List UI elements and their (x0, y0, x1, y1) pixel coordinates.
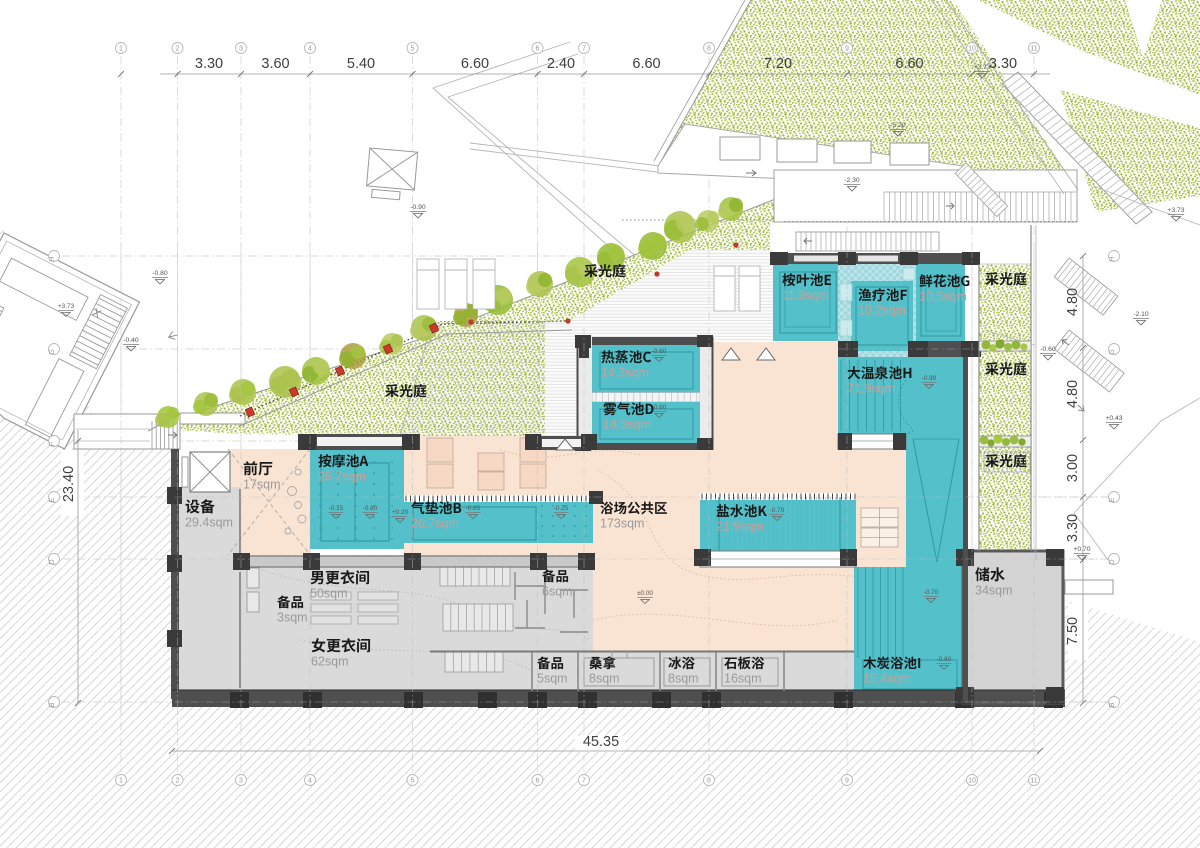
svg-text:6: 6 (536, 46, 540, 53)
svg-text:B: B (1107, 702, 1116, 707)
svg-text:-0.60: -0.60 (652, 348, 667, 355)
svg-text:9: 9 (845, 46, 849, 53)
svg-text:3sqm: 3sqm (277, 611, 308, 625)
svg-text:2: 2 (176, 778, 180, 785)
svg-text:11: 11 (1030, 46, 1037, 53)
svg-text:5sqm: 5sqm (537, 672, 568, 686)
svg-text:3.30: 3.30 (1065, 514, 1081, 542)
svg-text:6.60: 6.60 (895, 56, 923, 72)
svg-text:E: E (47, 497, 56, 502)
svg-text:-0.60: -0.60 (652, 404, 667, 411)
svg-text:21.9sqm: 21.9sqm (716, 520, 764, 534)
svg-text:10: 10 (968, 46, 976, 53)
svg-text:H: H (47, 256, 56, 261)
svg-text:-0.80: -0.80 (152, 270, 168, 277)
svg-text:8sqm: 8sqm (668, 672, 699, 686)
svg-text:+3.73: +3.73 (973, 64, 990, 71)
svg-text:-0.40: -0.40 (123, 337, 139, 344)
svg-text:5.40: 5.40 (347, 56, 375, 72)
svg-text:23.40: 23.40 (61, 466, 77, 502)
svg-text:6: 6 (536, 778, 540, 785)
svg-text:5: 5 (411, 46, 415, 53)
svg-text:26.7sqm: 26.7sqm (411, 517, 459, 531)
svg-text:26.7sqm: 26.7sqm (318, 470, 366, 484)
svg-text:-0.80: -0.80 (363, 505, 378, 512)
svg-text:62sqm: 62sqm (311, 655, 349, 669)
svg-text:7.50: 7.50 (1065, 617, 1081, 645)
svg-text:50sqm: 50sqm (310, 587, 348, 601)
svg-text:+0.20: +0.20 (392, 509, 409, 516)
svg-text:3: 3 (239, 46, 243, 53)
svg-text:8: 8 (707, 46, 711, 53)
svg-text:-0.70: -0.70 (770, 507, 785, 514)
svg-text:4.80: 4.80 (1065, 288, 1081, 316)
svg-text:29.4sqm: 29.4sqm (185, 516, 233, 530)
svg-text:16sqm: 16sqm (724, 672, 762, 686)
svg-text:+0.70: +0.70 (1073, 546, 1090, 553)
svg-text:-2.30: -2.30 (844, 177, 860, 184)
svg-text:1: 1 (119, 46, 123, 53)
svg-text:-0.15: -0.15 (329, 505, 344, 512)
svg-text:+3.73: +3.73 (1167, 207, 1184, 214)
svg-text:H: H (1107, 256, 1116, 261)
svg-text:F: F (47, 441, 56, 446)
svg-text:173sqm: 173sqm (600, 517, 644, 531)
svg-text:3.60: 3.60 (261, 56, 289, 72)
svg-text:-0.25: -0.25 (554, 505, 569, 512)
svg-text:G: G (1107, 349, 1116, 355)
svg-text:11.9sqm: 11.9sqm (782, 289, 829, 303)
svg-text:45.35: 45.35 (583, 734, 619, 750)
svg-text:4.80: 4.80 (1065, 380, 1081, 408)
svg-text:14.3sqm: 14.3sqm (603, 418, 651, 432)
svg-text:3.30: 3.30 (195, 56, 223, 72)
svg-text:5: 5 (411, 778, 415, 785)
svg-text:10: 10 (968, 778, 976, 785)
svg-text:-0.65: -0.65 (466, 505, 481, 512)
svg-text:8sqm: 8sqm (589, 672, 620, 686)
svg-text:2.40: 2.40 (547, 56, 575, 72)
svg-text:G: G (47, 349, 56, 355)
svg-text:6.60: 6.60 (461, 56, 489, 72)
svg-text:E: E (1107, 497, 1116, 502)
svg-text:B: B (47, 702, 56, 707)
svg-text:11: 11 (1030, 778, 1037, 785)
svg-text:10.2sqm: 10.2sqm (858, 304, 906, 318)
svg-text:6.60: 6.60 (632, 56, 660, 72)
svg-text:9: 9 (845, 778, 849, 785)
svg-text:10.5sqm: 10.5sqm (919, 290, 967, 304)
svg-text:8: 8 (707, 778, 711, 785)
svg-text:+0.43: +0.43 (1105, 415, 1122, 422)
svg-text:D: D (1107, 559, 1116, 565)
svg-text:3.00: 3.00 (1065, 454, 1081, 482)
svg-text:4: 4 (308, 46, 312, 53)
svg-text:D: D (47, 559, 56, 565)
svg-text:6sqm: 6sqm (542, 585, 573, 599)
svg-text:3.30: 3.30 (989, 56, 1017, 72)
svg-text:-0.60: -0.60 (937, 656, 952, 663)
svg-text:4: 4 (308, 778, 312, 785)
svg-text:1: 1 (119, 778, 123, 785)
svg-text:-0.90: -0.90 (410, 204, 426, 211)
svg-text:2: 2 (176, 46, 180, 53)
svg-text:-5.20: -5.20 (890, 122, 906, 129)
svg-text:34sqm: 34sqm (975, 584, 1013, 598)
svg-text:±0.00: ±0.00 (637, 590, 653, 597)
svg-text:15.4sqm: 15.4sqm (863, 672, 911, 686)
svg-text:14.3sqm: 14.3sqm (601, 366, 649, 380)
svg-text:-0.60: -0.60 (1040, 346, 1056, 353)
svg-text:7.20: 7.20 (764, 56, 792, 72)
svg-text:-2.10: -2.10 (1133, 311, 1149, 318)
svg-text:+3.73: +3.73 (58, 303, 75, 310)
svg-text:71.9sqm: 71.9sqm (847, 382, 895, 396)
svg-text:7: 7 (582, 46, 586, 53)
svg-text:7: 7 (582, 778, 586, 785)
svg-text:17sqm: 17sqm (243, 478, 281, 492)
svg-text:3: 3 (239, 778, 243, 785)
svg-text:-0.70: -0.70 (924, 589, 939, 596)
svg-text:-0.90: -0.90 (922, 375, 937, 382)
